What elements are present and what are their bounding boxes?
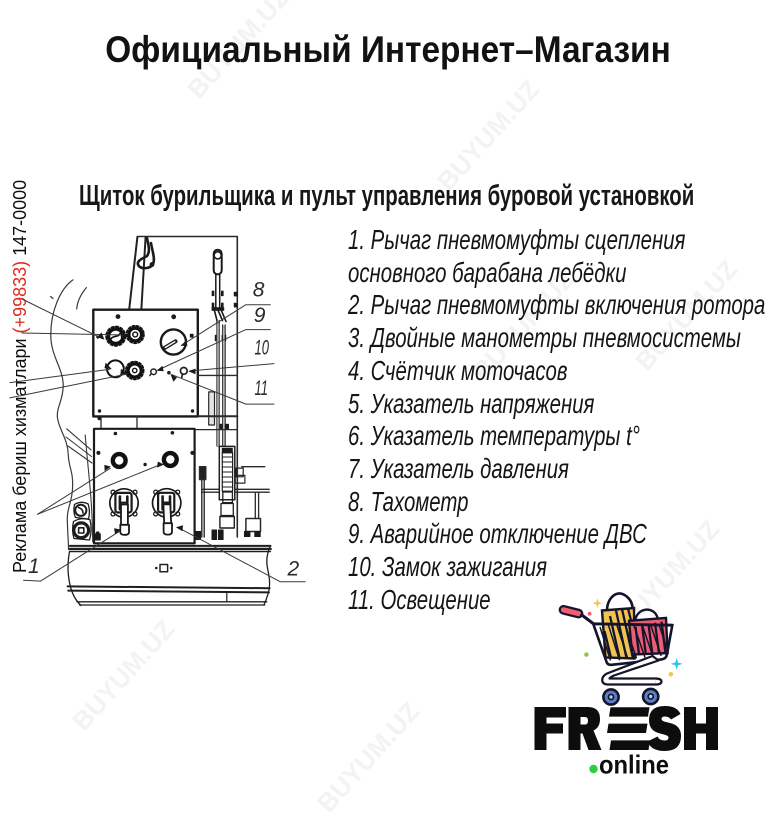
- svg-text:1: 1: [28, 555, 40, 578]
- svg-text:2: 2: [287, 558, 300, 581]
- svg-text:online: online: [599, 750, 669, 780]
- svg-text:9: 9: [254, 304, 266, 327]
- svg-text:11: 11: [255, 377, 269, 400]
- svg-text:8: 8: [253, 279, 265, 302]
- svg-text:10: 10: [255, 337, 270, 360]
